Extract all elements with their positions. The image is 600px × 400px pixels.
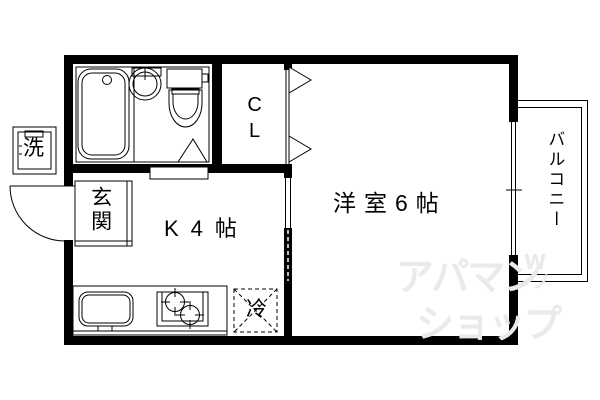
wall-divider-top <box>284 164 292 178</box>
refrigerator-label: 冷 <box>246 299 267 322</box>
entrance-door-swing-icon <box>10 186 75 241</box>
wall-right-upper <box>509 55 518 122</box>
balcony-label: バルコニー <box>545 130 563 230</box>
wall-top <box>64 55 518 64</box>
wall-divider-bottom <box>284 283 292 336</box>
wall-bathroom-right <box>212 64 222 173</box>
toilet-icon <box>167 69 208 127</box>
entrance-label: 玄関 <box>88 186 111 234</box>
bathtub-icon <box>78 69 129 159</box>
bath-door-threshold <box>150 167 208 179</box>
closet-folding-door-icon <box>286 64 311 164</box>
sliding-door-icon <box>284 178 292 283</box>
kitchen-counter <box>73 286 227 335</box>
kitchen-label: K4帖 <box>164 217 249 241</box>
unit-bath <box>76 67 209 179</box>
stove-burners-icon <box>157 288 208 329</box>
kitchen-sink-icon <box>79 292 133 331</box>
closet-label: CL <box>243 94 265 146</box>
floor-plan: CL 玄関 K4帖 洋室6帖 洗 冷 バルコニー アパマン W ノ ショップ <box>0 0 600 400</box>
watermark-logo-figure: ノ <box>533 268 551 294</box>
washing-machine-label: 洗 <box>23 138 44 161</box>
western-room-label: 洋室6帖 <box>333 191 447 216</box>
watermark-line2: ショップ <box>416 293 560 348</box>
window-icon <box>506 122 522 255</box>
wall-left-lower <box>64 240 73 345</box>
bath-door-triangle-icon <box>178 139 207 162</box>
